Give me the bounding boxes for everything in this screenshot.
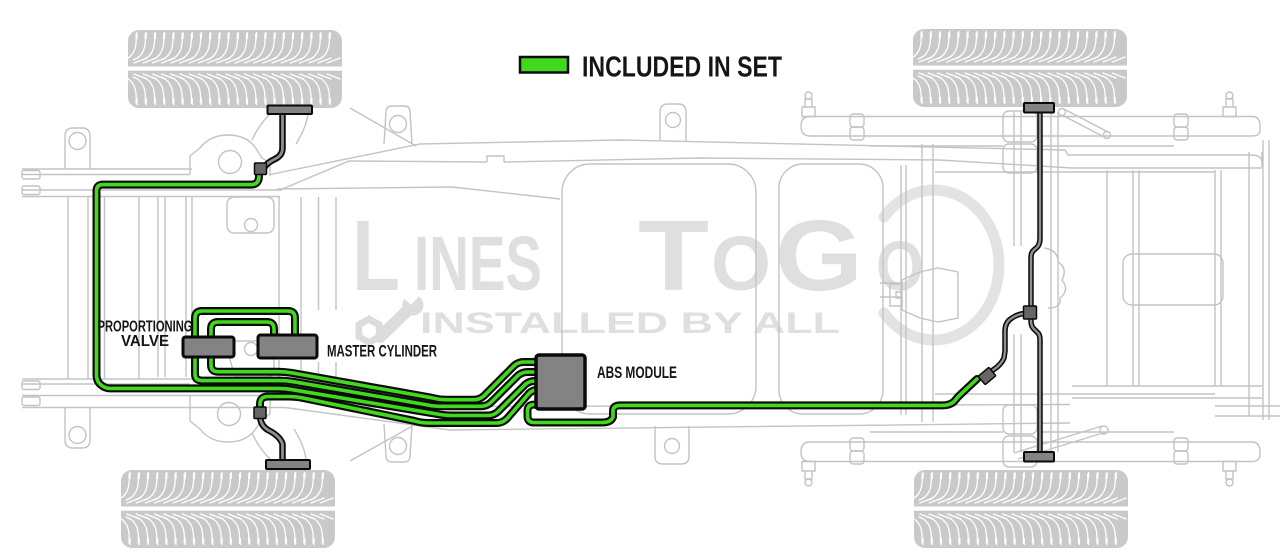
svg-text:INES: INES [414,221,542,307]
svg-text:INSTALLED BY ALL: INSTALLED BY ALL [420,307,840,340]
svg-text:INCLUDED IN SET: INCLUDED IN SET [582,52,782,84]
svg-text:MASTER CYLINDER: MASTER CYLINDER [327,342,437,361]
svg-text:G: G [775,200,863,312]
svg-text:L: L [352,200,400,312]
svg-text:T: T [638,200,709,312]
svg-text:VALVE: VALVE [121,333,169,350]
svg-text:O: O [711,221,771,307]
svg-text:ABS MODULE: ABS MODULE [597,364,677,382]
